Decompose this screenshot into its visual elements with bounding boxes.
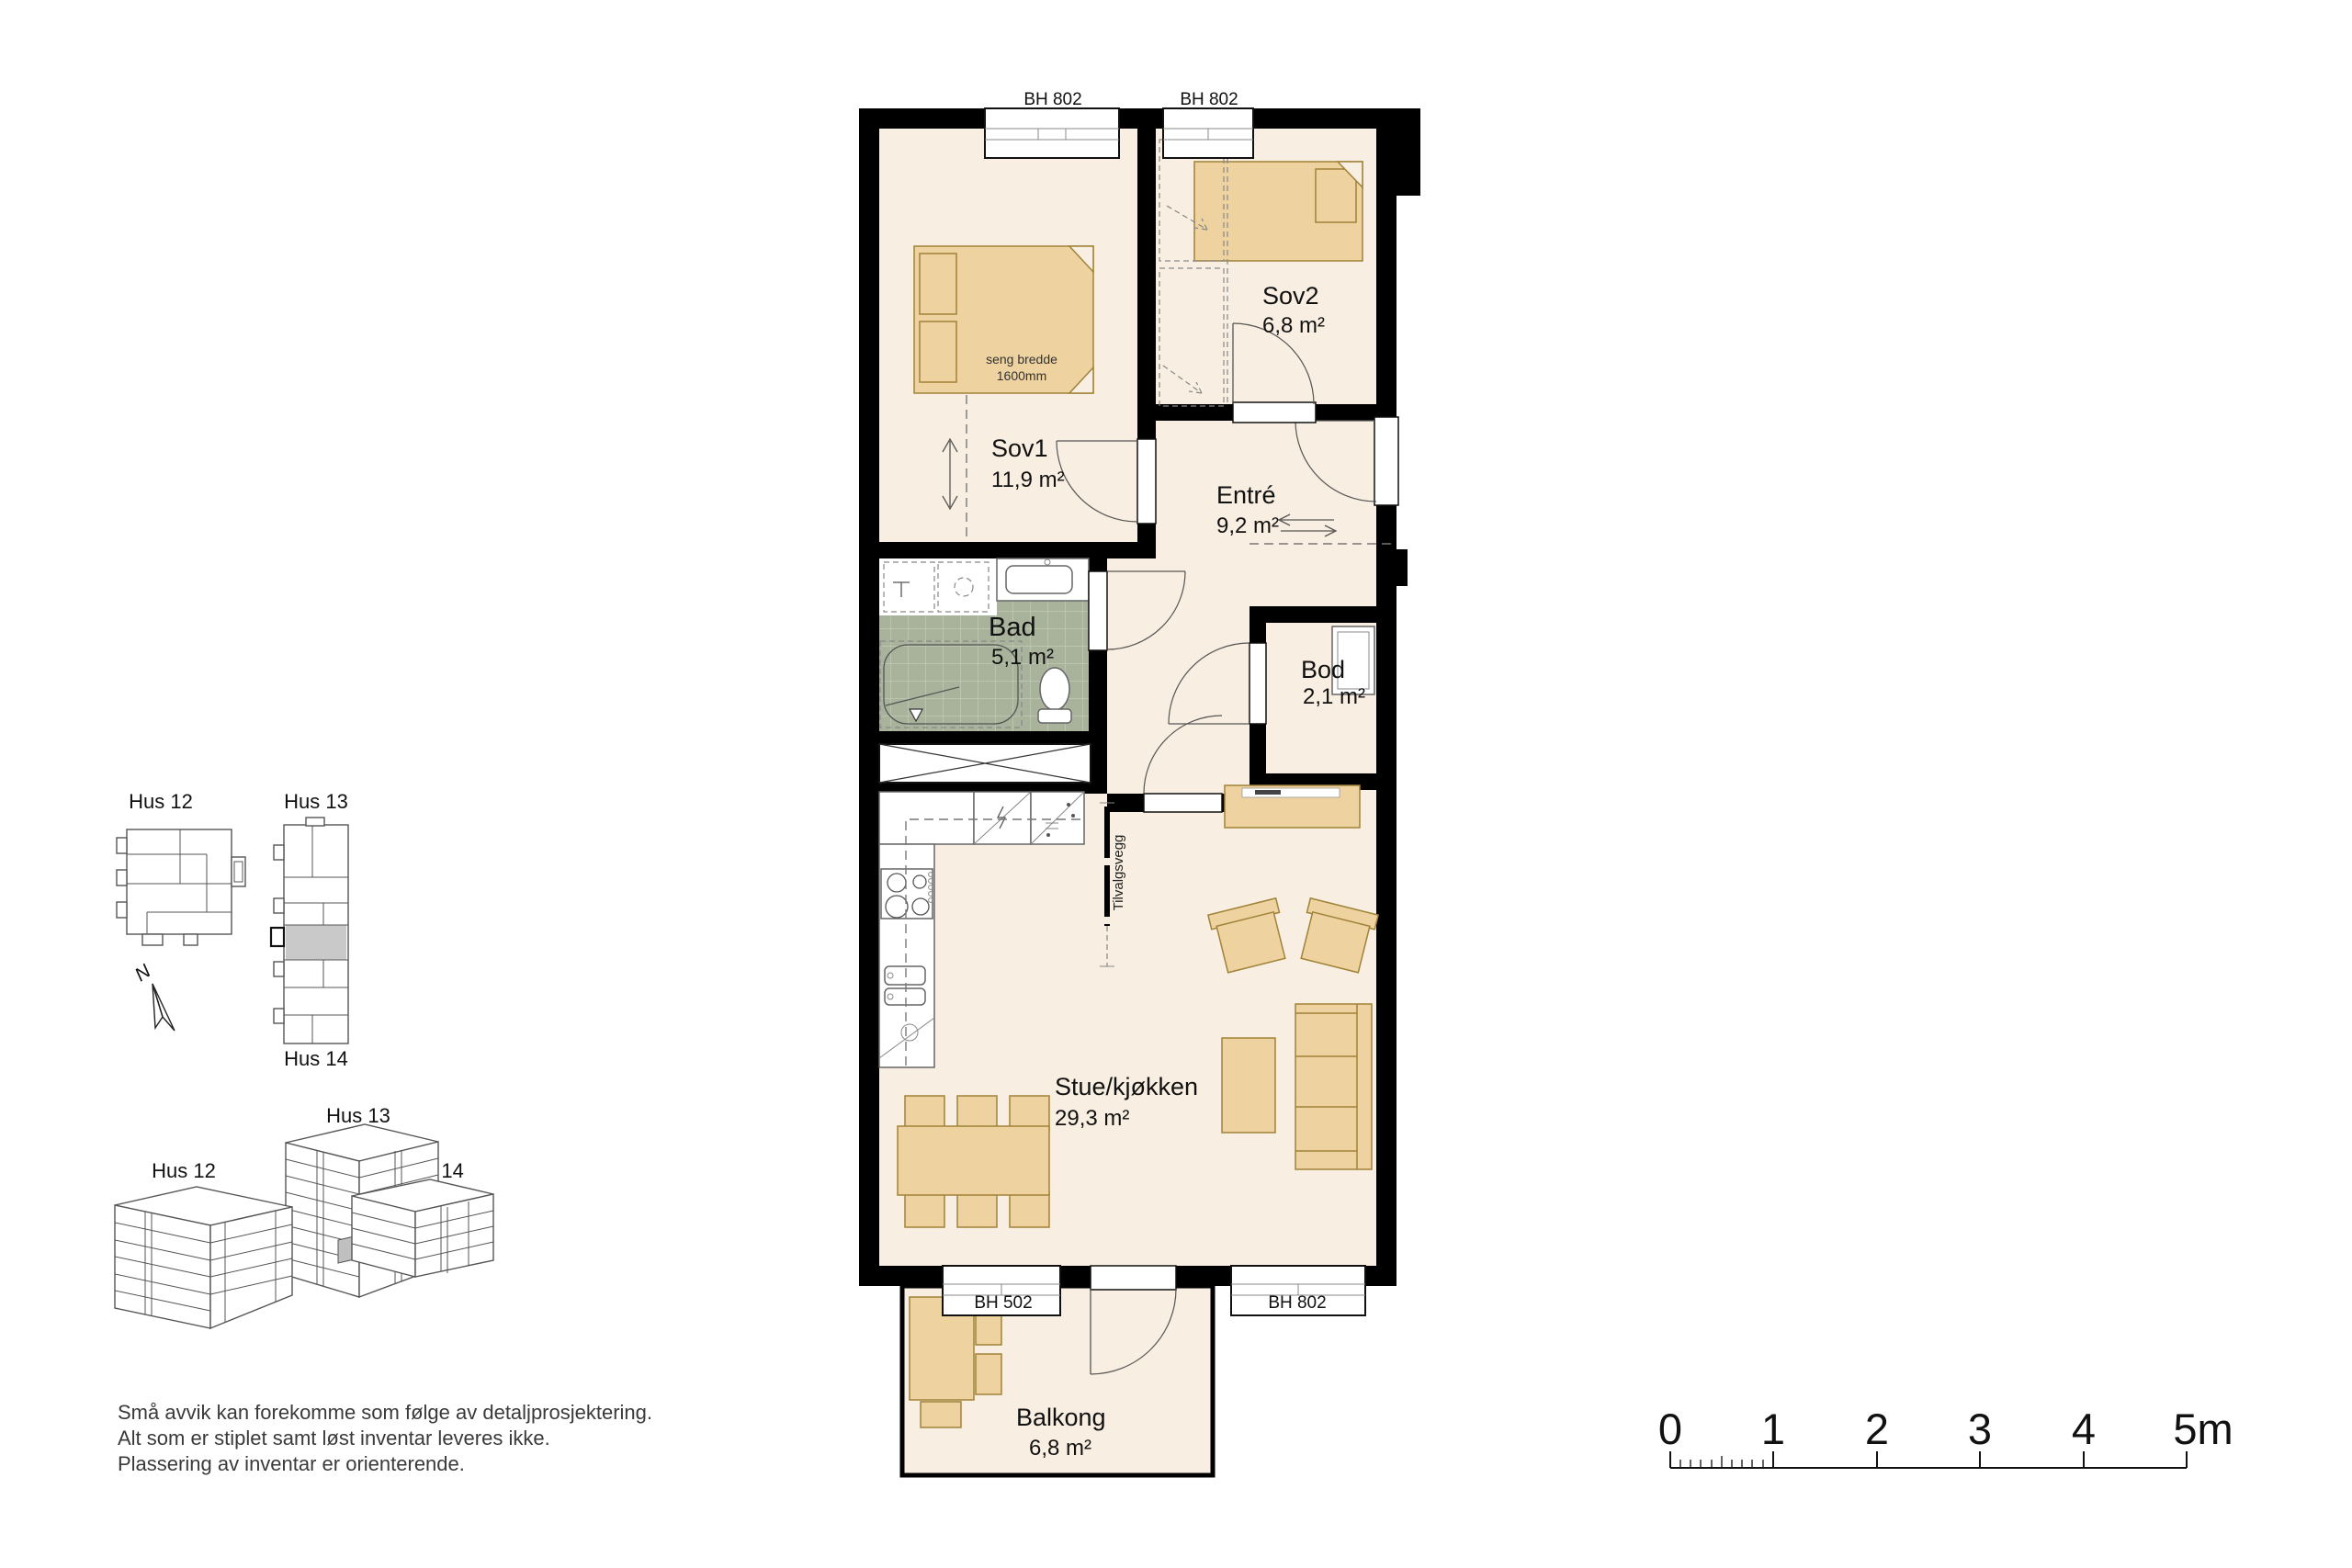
- stove: [881, 869, 933, 919]
- bed-width-note-1: seng bredde: [986, 352, 1057, 367]
- window-label-bottom-right: BH 802: [1268, 1293, 1326, 1313]
- balcony-chair: [921, 1402, 961, 1427]
- wall-bad-bottom: [879, 730, 1107, 744]
- toilet: [1038, 668, 1071, 723]
- isometric-hus12: [115, 1187, 292, 1328]
- site-plan-hus13-label: Hus 13: [284, 790, 348, 813]
- room-area-balkong: 6,8 m²: [1029, 1436, 1091, 1461]
- site-plan-hus12: [117, 829, 245, 945]
- room-area-bod: 2,1 m²: [1303, 684, 1365, 709]
- sideboard: [1225, 785, 1360, 828]
- room-label-stue: Stue/kjøkken: [1055, 1073, 1198, 1100]
- window-label-balcony: BH 502: [974, 1293, 1032, 1313]
- site-plan-hus14-label: Hus 14: [284, 1047, 348, 1070]
- north-label: N: [131, 960, 155, 986]
- site-plan-hus12-label: Hus 12: [129, 790, 193, 813]
- disclaimer: Små avvik kan forekomme som følge av det…: [118, 1401, 652, 1475]
- site-plan-hus13: [271, 818, 348, 1043]
- scale-label-2: 2: [1865, 1404, 1889, 1453]
- disclaimer-line-1: Små avvik kan forekomme som følge av det…: [118, 1401, 652, 1424]
- optional-wall-label: Tilvalgsvegg: [1111, 835, 1126, 911]
- wall-sov1-bad: [879, 542, 1156, 558]
- isometric-hus12-label: Hus 12: [152, 1159, 216, 1182]
- north-arrow-icon: N: [131, 960, 175, 1031]
- bathroom-sink: [997, 558, 1089, 601]
- scale-label-0: 0: [1658, 1404, 1682, 1453]
- outer-wall-notch: [1396, 108, 1420, 196]
- room-label-bod: Bod: [1301, 656, 1345, 683]
- scale-bar-minor-ticks: [1680, 1456, 1763, 1468]
- dining-table: [898, 1126, 1049, 1195]
- window-top-right: [1163, 108, 1253, 158]
- window-label-top-right: BH 802: [1180, 90, 1238, 109]
- balcony-chair: [976, 1354, 1001, 1394]
- disclaimer-line-3: Plassering av inventar er orienterende.: [118, 1452, 465, 1475]
- room-label-bad: Bad: [989, 613, 1036, 642]
- wall-bod-top: [1249, 606, 1376, 623]
- room-area-bad: 5,1 m²: [991, 645, 1054, 670]
- floor-plan-page: BH 802 BH 802 Sov1 11,9 m² Sov2 6,8 m² E…: [0, 0, 2352, 1568]
- scale-label-4: 4: [2072, 1404, 2096, 1453]
- site-plan: Hus 12 Hus 13 Hus 14 N: [117, 790, 348, 1070]
- coffee-table: [1222, 1038, 1275, 1133]
- bed-sov2: [1194, 162, 1363, 261]
- room-area-sov2: 6,8 m²: [1262, 313, 1325, 338]
- window-label-top-left: BH 802: [1023, 90, 1081, 109]
- isometric-overview: Hus 13 Hus 12 Hus 14: [115, 1104, 493, 1328]
- room-label-sov2: Sov2: [1262, 282, 1319, 310]
- scale-label-3: 3: [1968, 1404, 1992, 1453]
- room-label-sov1: Sov1: [991, 434, 1048, 462]
- room-area-stue: 29,3 m²: [1055, 1106, 1129, 1131]
- fridge-cabinet: [974, 792, 1031, 844]
- highlighted-unit: [286, 925, 346, 960]
- window-top-left: [985, 108, 1119, 158]
- apartment-plan: BH 802 BH 802 Sov1 11,9 m² Sov2 6,8 m² E…: [859, 90, 1420, 1475]
- sofa: [1295, 1004, 1372, 1169]
- scale-bar: 0 1 2 3 4 5m: [1658, 1404, 2233, 1468]
- outer-wall-notch-2: [1396, 549, 1408, 586]
- scale-label-5: 5m: [2173, 1404, 2233, 1453]
- room-area-entre: 9,2 m²: [1216, 513, 1279, 538]
- room-label-balkong: Balkong: [1016, 1404, 1106, 1431]
- wardrobe: [879, 744, 1091, 783]
- isometric-hus14: [352, 1179, 493, 1277]
- isometric-hus13-label: Hus 13: [326, 1104, 390, 1127]
- scale-label-1: 1: [1761, 1404, 1785, 1453]
- room-area-sov1: 11,9 m²: [991, 468, 1065, 492]
- disclaimer-line-2: Alt som er stiplet samt løst inventar le…: [118, 1427, 550, 1450]
- freezer-cabinet: [1031, 792, 1084, 844]
- bed-width-note-2: 1600mm: [997, 368, 1046, 383]
- room-label-entre: Entré: [1216, 481, 1276, 509]
